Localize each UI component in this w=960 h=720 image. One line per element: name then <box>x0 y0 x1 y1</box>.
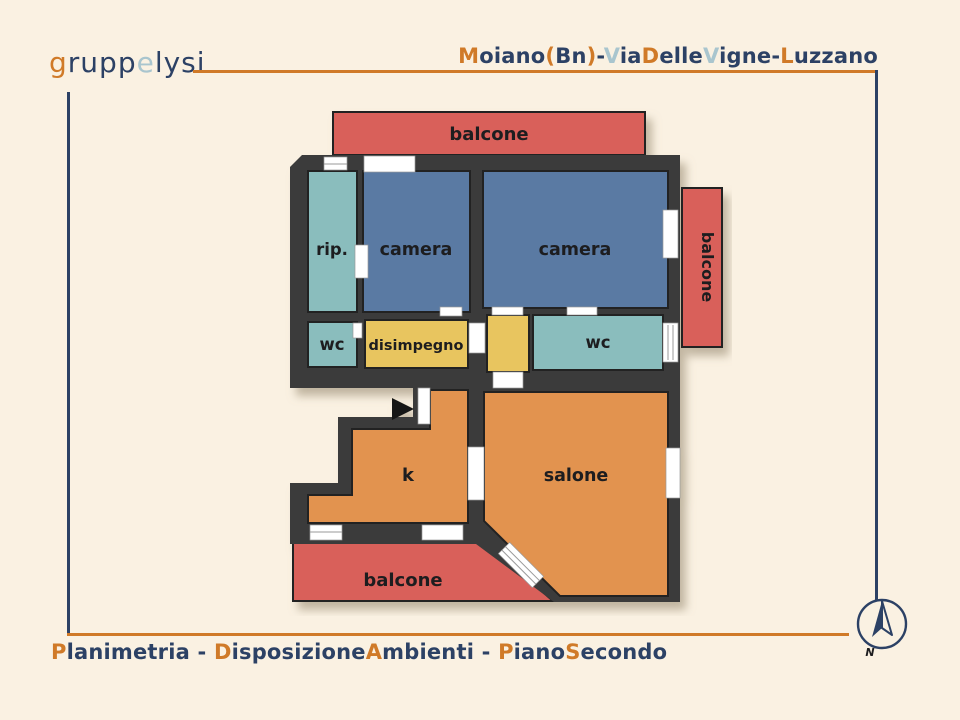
window <box>663 210 678 258</box>
compass-icon: N <box>852 592 914 662</box>
room-label: wc <box>319 335 344 354</box>
door-opening <box>355 245 368 278</box>
bottom-rule <box>67 633 849 636</box>
compass-needle-filled <box>872 601 882 637</box>
caption-segment: P <box>51 640 67 664</box>
room-label: balcone <box>698 232 717 303</box>
caption-segment: P <box>498 640 514 664</box>
title-segment: V <box>703 44 719 68</box>
title-segment: elle <box>659 44 703 68</box>
left-rule <box>67 92 70 636</box>
title-segment: D <box>642 44 660 68</box>
title-segment: V <box>604 44 620 68</box>
door-opening <box>493 372 523 388</box>
window <box>422 525 463 540</box>
title-segment: M <box>458 44 479 68</box>
entrance-door <box>418 388 430 424</box>
page: gruppelysi Moiano(Bn)-ViaDelleVigne-Luzz… <box>0 0 960 720</box>
caption-segment: - <box>190 640 214 664</box>
caption-segment: econdo <box>581 640 668 664</box>
caption-segment: lanimetria <box>67 640 190 664</box>
title-segment: - <box>771 44 780 68</box>
logo-segment: g <box>49 46 68 79</box>
logo-segment: e <box>137 46 155 79</box>
title-segment: ) <box>587 44 597 68</box>
window <box>663 323 678 362</box>
compass-north-label: N <box>865 646 874 659</box>
logo-segment: rupp <box>68 46 137 79</box>
room-label: camera <box>539 240 612 260</box>
title-segment: ia <box>620 44 642 68</box>
floor-plan: balcone rip. camera camera balcone wc di… <box>282 104 732 616</box>
right-rule <box>875 70 878 600</box>
caption-segment: S <box>565 640 580 664</box>
entrance-arrow-icon <box>392 398 414 420</box>
caption-segment: A <box>366 640 382 664</box>
room-label: k <box>402 465 415 486</box>
room-label: salone <box>544 466 609 486</box>
logo-segment: lysi <box>155 46 206 79</box>
listing-title: Moiano(Bn)-ViaDelleVigne-Luzzano <box>458 44 878 68</box>
room-label: wc <box>585 333 610 352</box>
window <box>364 156 415 172</box>
caption: Planimetria - DisposizioneAmbienti - Pia… <box>51 640 667 664</box>
title-segment: Bn <box>555 44 586 68</box>
room-corridor <box>487 315 529 372</box>
title-segment: igne <box>719 44 771 68</box>
title-segment: oiano <box>479 44 545 68</box>
title-segment: L <box>780 44 794 68</box>
caption-segment: iano <box>514 640 566 664</box>
window <box>666 448 680 498</box>
room-k <box>308 390 468 523</box>
room-label: rip. <box>316 240 348 259</box>
caption-segment: isposizione <box>232 640 366 664</box>
door-opening <box>492 307 523 315</box>
caption-segment: mbienti <box>382 640 474 664</box>
brand-logo: gruppelysi <box>49 46 206 79</box>
door-opening <box>468 447 484 500</box>
caption-segment: - <box>474 640 498 664</box>
title-segment: - <box>596 44 603 68</box>
door-opening <box>469 323 485 353</box>
door-opening <box>567 307 597 315</box>
room-label: disimpegno <box>369 338 464 354</box>
room-label: balcone <box>449 124 528 145</box>
room-label: camera <box>380 240 453 260</box>
title-segment: uzzano <box>794 44 878 68</box>
room-label: balcone <box>363 570 442 591</box>
door-opening <box>353 323 362 338</box>
title-segment: ( <box>545 44 555 68</box>
caption-segment: D <box>214 640 232 664</box>
compass-needle-outline <box>882 601 892 635</box>
door-opening <box>440 307 462 316</box>
top-rule <box>193 70 877 73</box>
